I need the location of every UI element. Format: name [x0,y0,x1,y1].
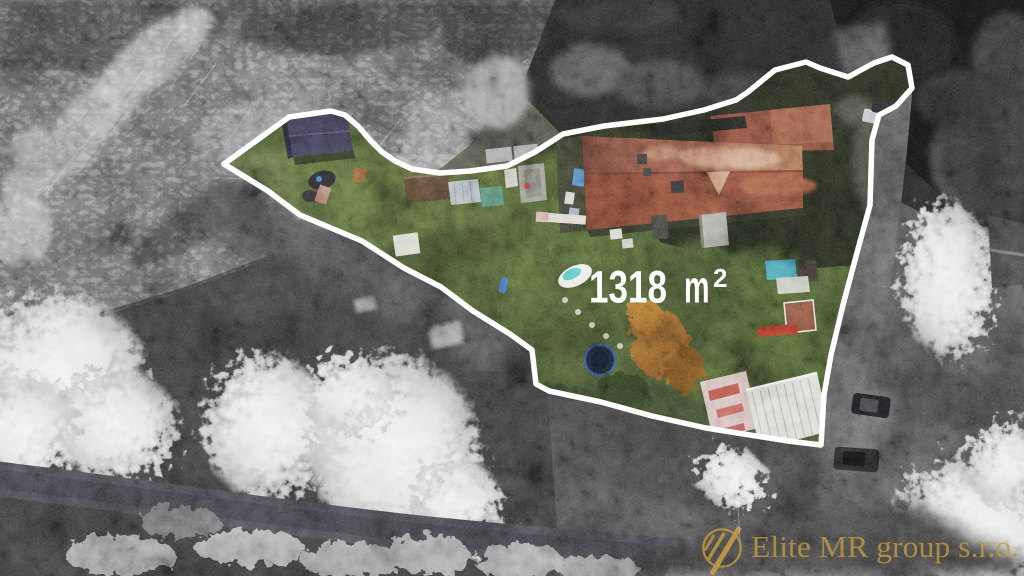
svg-text:1318: 1318 [589,262,667,313]
svg-text:m: m [684,262,710,313]
svg-text:2: 2 [713,263,727,293]
svg-text:Elite MR group s.r.o.: Elite MR group s.r.o. [751,529,1019,564]
